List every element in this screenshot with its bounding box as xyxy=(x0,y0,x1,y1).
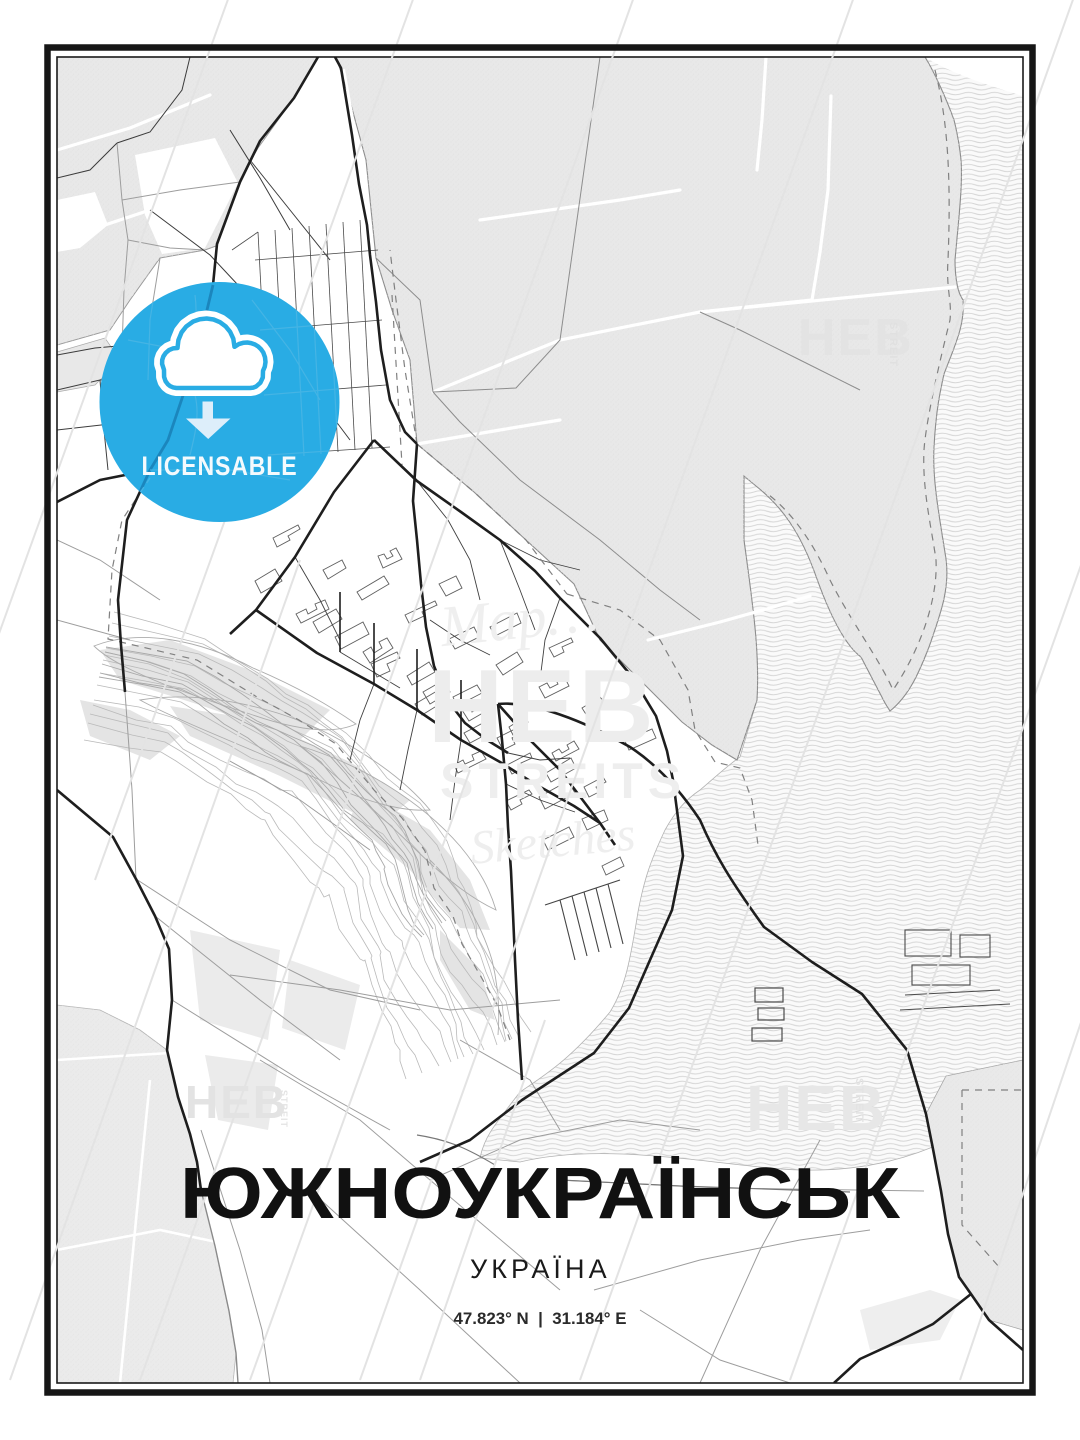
svg-text:STREIT: STREIT xyxy=(853,1078,865,1123)
svg-text:STREIT: STREIT xyxy=(279,1090,289,1128)
svg-text:HEB: HEB xyxy=(185,1076,288,1128)
svg-text:LICENSABLE: LICENSABLE xyxy=(142,451,298,481)
svg-text:ЮЖНОУКРАЇНСЬК: ЮЖНОУКРАЇНСЬК xyxy=(180,1154,901,1234)
svg-text:УКРАЇНА: УКРАЇНА xyxy=(470,1254,610,1284)
svg-text:STREITS: STREITS xyxy=(440,753,686,809)
svg-text:HEB: HEB xyxy=(428,649,657,765)
svg-text:47.823° N | 31.184° E: 47.823° N | 31.184° E xyxy=(454,1309,627,1328)
svg-text:STREIT: STREIT xyxy=(887,322,899,367)
